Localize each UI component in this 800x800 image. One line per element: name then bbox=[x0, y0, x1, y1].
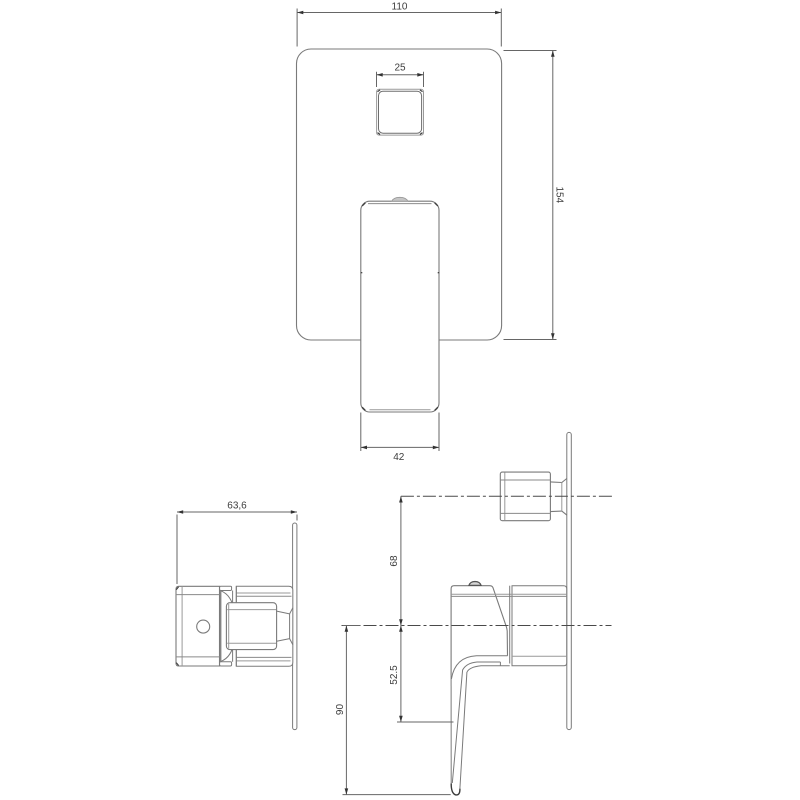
svg-text:110: 110 bbox=[392, 2, 408, 13]
svg-text:52.5: 52.5 bbox=[389, 665, 400, 685]
svg-text:25: 25 bbox=[394, 63, 406, 74]
svg-text:90: 90 bbox=[335, 704, 346, 716]
svg-text:68: 68 bbox=[389, 555, 400, 567]
svg-text:63,6: 63,6 bbox=[227, 501, 247, 512]
svg-text:42: 42 bbox=[393, 452, 405, 463]
svg-text:154: 154 bbox=[554, 186, 565, 203]
